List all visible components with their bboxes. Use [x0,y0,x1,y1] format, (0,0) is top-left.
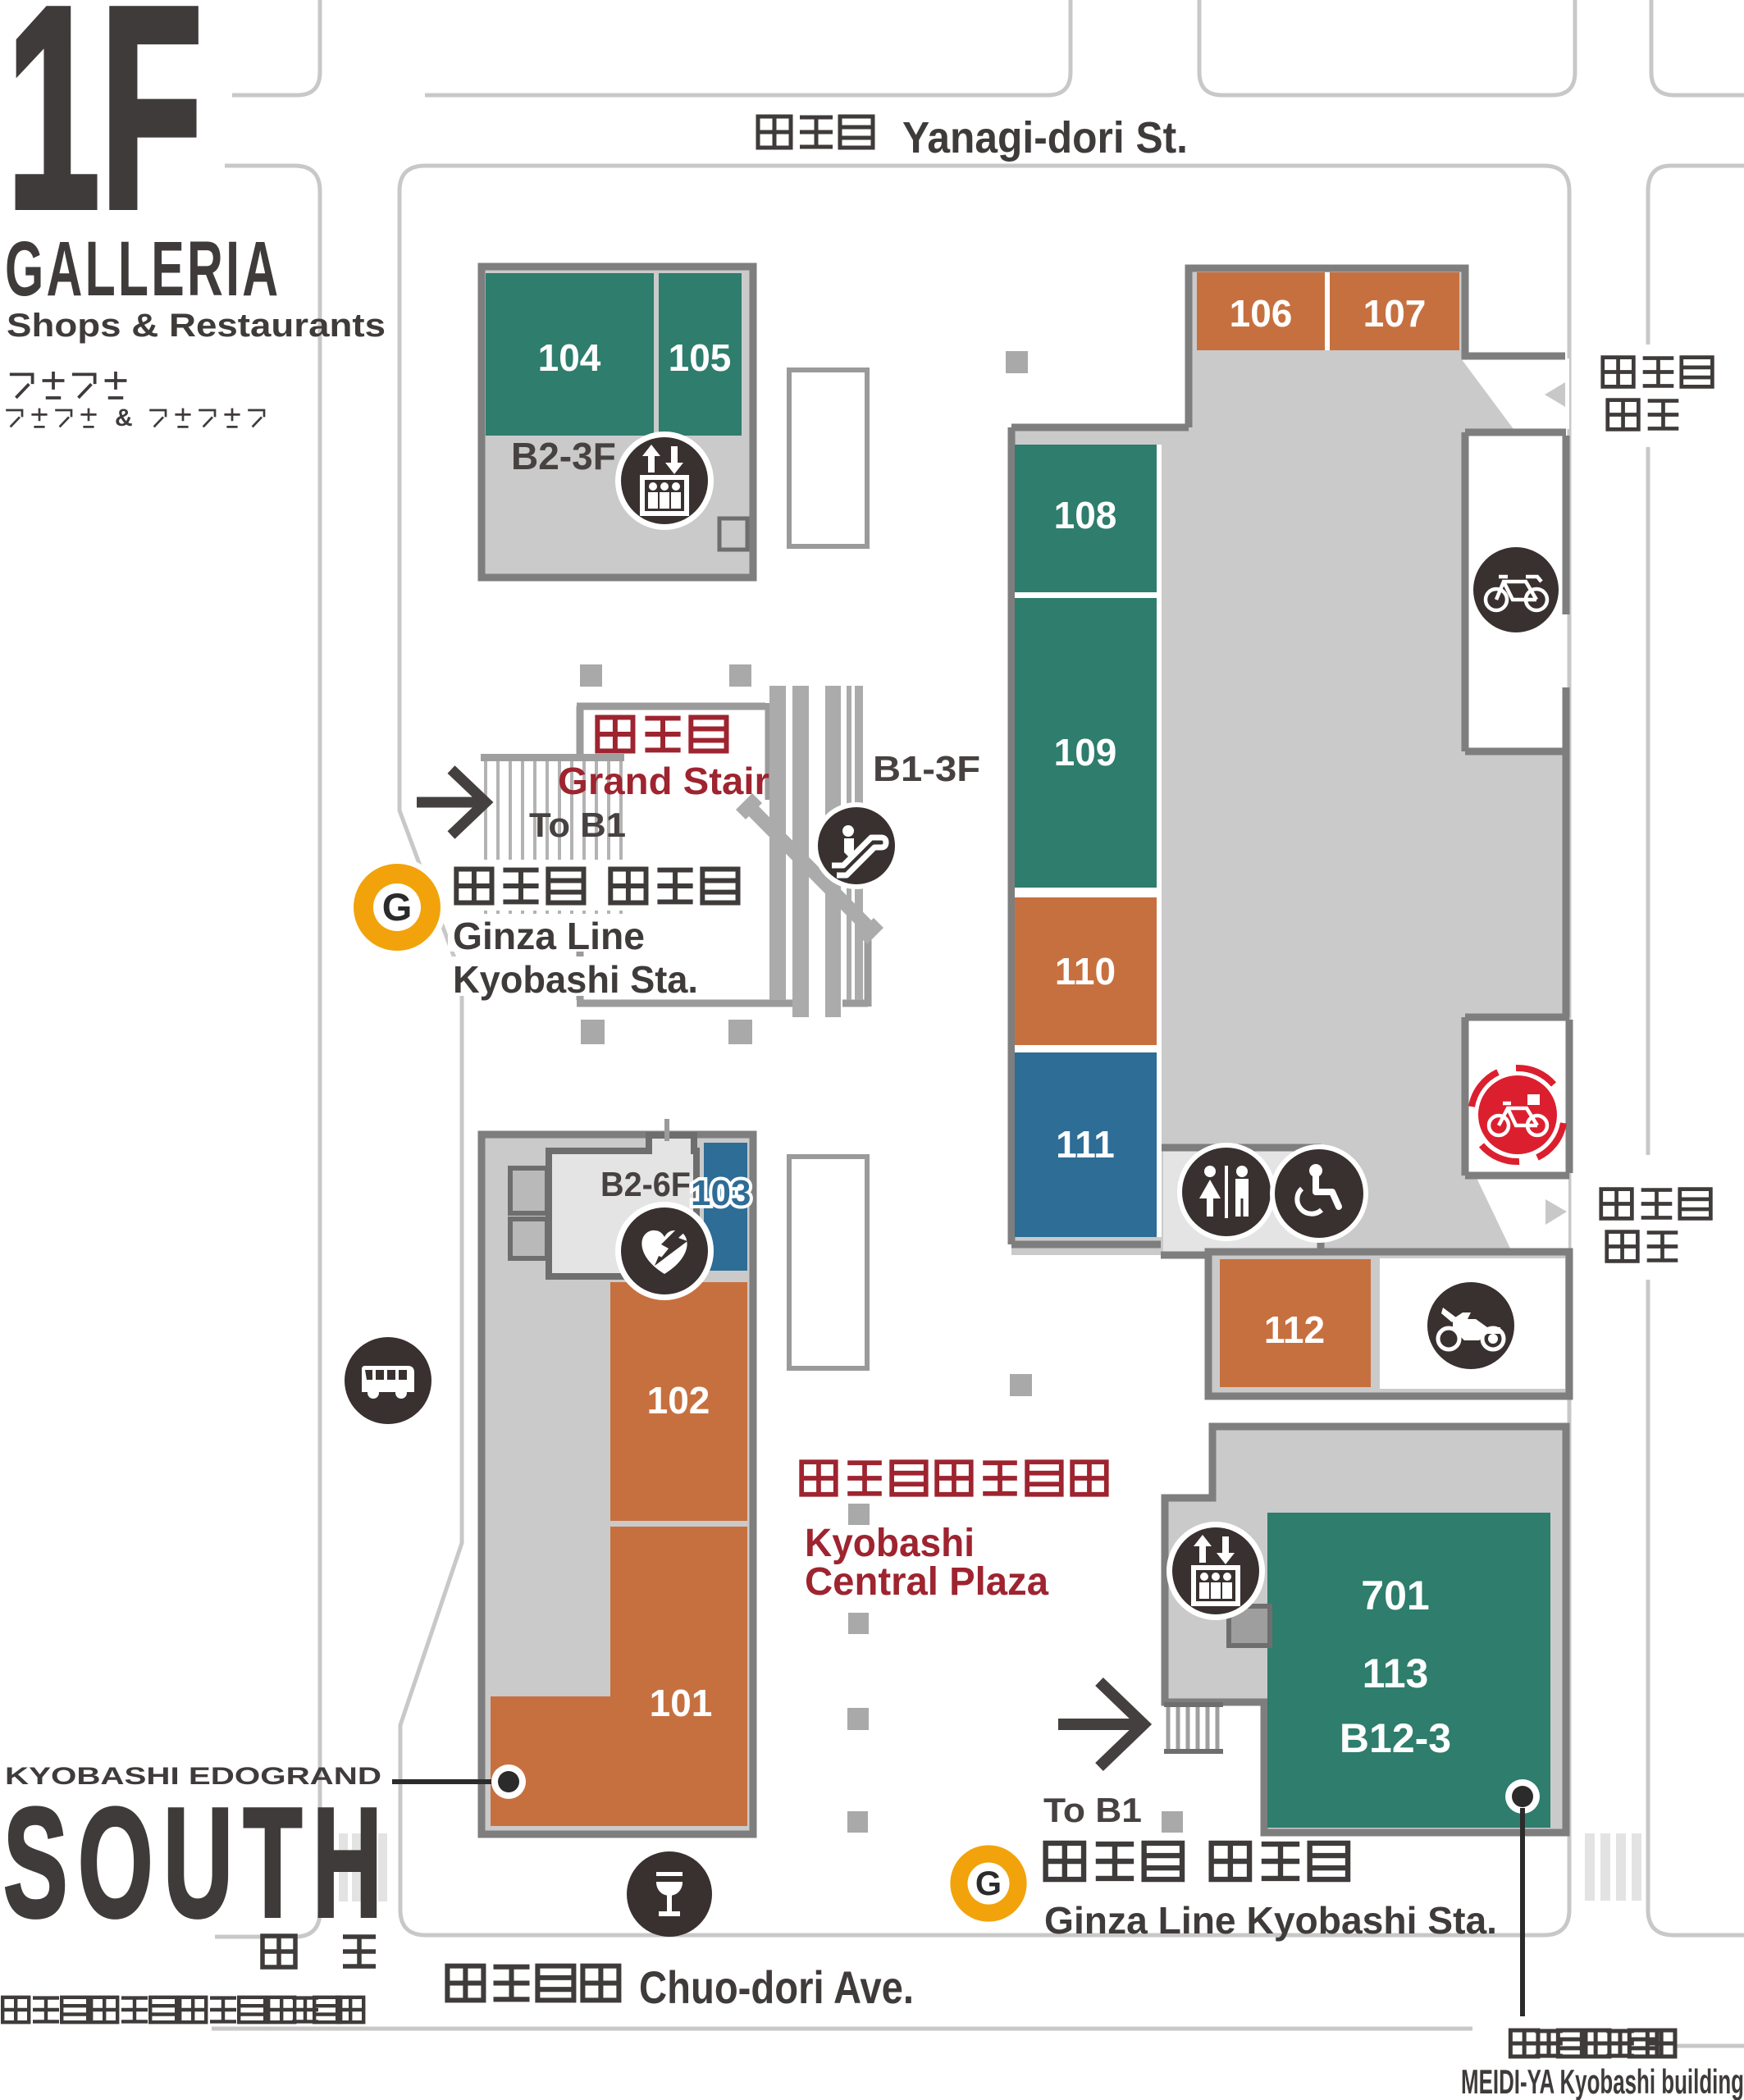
svg-text:105: 105 [669,336,732,379]
svg-text:Kyobashi Sta.: Kyobashi Sta. [453,958,698,1001]
svg-text:106: 106 [1230,292,1293,335]
svg-text:B1-3F: B1-3F [873,749,980,789]
svg-text:103: 103 [691,1173,751,1213]
svg-text:Grand Stair: Grand Stair [558,760,769,802]
svg-text:104: 104 [538,336,601,379]
svg-text:B2-6F: B2-6F [600,1165,691,1203]
svg-text:111: 111 [1056,1123,1115,1166]
svg-text:SOUTH: SOUTH [3,1776,392,1950]
svg-text:B12-3: B12-3 [1340,1715,1451,1761]
svg-text:Ginza Line Kyobashi Sta.: Ginza Line Kyobashi Sta. [1044,1899,1497,1942]
svg-text:110: 110 [1055,950,1116,993]
svg-text:112: 112 [1264,1308,1325,1351]
svg-text:B2-3F: B2-3F [511,435,616,477]
svg-text:To B1: To B1 [529,806,626,844]
svg-text:Yanagi-dori St.: Yanagi-dori St. [902,113,1188,162]
svg-text:102: 102 [647,1379,710,1422]
svg-text:108: 108 [1054,494,1117,536]
svg-text:701: 701 [1361,1573,1429,1618]
svg-text:MEIDI-YA Kyobashi building: MEIDI-YA Kyobashi building [1461,2062,1744,2100]
svg-text:Kyobashi: Kyobashi [805,1522,975,1565]
svg-text:109: 109 [1054,731,1117,774]
svg-text:113: 113 [1363,1650,1429,1696]
svg-text:Chuo-dori Ave.: Chuo-dori Ave. [639,1961,914,2013]
svg-text:101: 101 [650,1682,713,1724]
svg-text:107: 107 [1363,292,1427,335]
svg-text:GALLERIA: GALLERIA [5,225,281,312]
svg-text:Shops & Restaurants: Shops & Restaurants [7,308,386,344]
svg-text:Central Plaza: Central Plaza [805,1560,1048,1604]
svg-text:Ginza Line: Ginza Line [453,915,645,957]
svg-text:&: & [115,404,133,431]
svg-text:To B1: To B1 [1043,1791,1142,1829]
